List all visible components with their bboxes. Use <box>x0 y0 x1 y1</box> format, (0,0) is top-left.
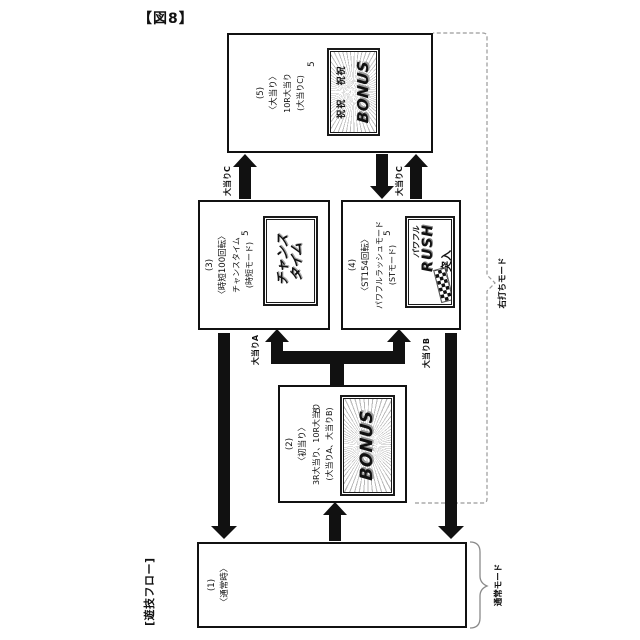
box-detail: (大当りC) <box>294 35 307 151</box>
rush-display: パワフル RUSH 突入 <box>408 219 452 305</box>
bonus-text: BONUS <box>357 398 377 493</box>
box-powerful-rush: (4) 〈ST154回転〉 パワフルラッシュモード (STモード) パワフル R… <box>341 200 461 330</box>
box-number: (4) <box>347 202 360 328</box>
box-normal-state: (1) 〈通常時〉 <box>197 542 467 628</box>
arrow-chancetime-to-normal-icon <box>211 333 237 539</box>
ref-5-label: 5 <box>241 230 251 236</box>
arrow-jackpot-to-rush-icon <box>370 154 394 199</box>
box-title: 〈大当り〉 <box>268 35 281 151</box>
label-jackpot-a: 大当りA <box>250 324 261 376</box>
box-detail: (時短モード) <box>243 202 256 328</box>
box-detail: 10R大当り <box>281 35 294 151</box>
chance-line1: チャンス <box>277 233 291 287</box>
screen-first-hit-bonus: BONUS <box>340 395 395 496</box>
box-first-hit: (2) 〈初当り〉 3R大当り、10R大当り (大当りA、大当りB) BONUS <box>278 385 407 503</box>
ref-5-label: 5 <box>307 61 317 67</box>
box-detail: (STモード) <box>386 202 399 328</box>
chance-line2: タイム <box>291 242 305 283</box>
ref-5-label: 5 <box>383 230 393 236</box>
label-jackpot-c-rush: 大当りC <box>394 155 405 207</box>
arrow-rush-to-normal-icon <box>438 333 464 539</box>
fork-bar <box>271 351 405 364</box>
box-chance-time: (3) 〈時短100回転〉 チャンスタイム (時短モード) チャンス タイム <box>198 200 330 330</box>
rotated-diagram: [遊技フロー] (1) 〈通常時〉 <box>0 0 640 640</box>
box-title: 〈ST154回転〉 <box>360 202 373 328</box>
box-title: 〈初当り〉 <box>297 387 310 501</box>
box-number: (3) <box>204 202 217 328</box>
label-jackpot-c-chance: 大当りC <box>222 155 233 207</box>
celebration-kanji: 祝祝 <box>334 99 347 119</box>
chance-time-display: チャンス タイム <box>266 219 315 303</box>
arrow-firsthit-to-rush-icon <box>387 329 411 352</box>
fork-stem <box>330 362 344 385</box>
celebration-kanji: 祝祝 <box>334 65 347 85</box>
right-strike-mode-label: 右打ちモード <box>496 247 508 319</box>
box-number: (2) <box>284 387 297 501</box>
box-detail: 3R大当り、10R大当り <box>310 387 323 501</box>
box-detail: パワフルラッシュモード <box>373 202 386 328</box>
box-number: (1) <box>206 544 219 626</box>
box-detail: チャンスタイム <box>230 202 243 328</box>
bonus-text: BONUS <box>354 51 372 133</box>
bonus-starburst: 祝祝 祝祝 BONUS <box>330 51 377 133</box>
label-jackpot-b: 大当りB <box>421 327 432 379</box>
normal-mode-brace <box>470 542 487 628</box>
ref-5-label: 5 <box>313 407 323 413</box>
arrow-normal-to-firsthit-icon <box>323 502 347 541</box>
bonus-starburst: BONUS <box>343 398 392 493</box>
checkered-road-icon <box>433 267 452 303</box>
rush-main-text: RUSH <box>420 224 436 272</box>
screen-chance-time: チャンス タイム <box>263 216 318 306</box>
arrow-rush-to-jackpot-icon <box>404 154 428 199</box>
arrow-firsthit-to-chancetime-icon <box>265 329 289 352</box>
arrow-chancetime-to-jackpot-icon <box>233 154 257 199</box>
box-title: 〈通常時〉 <box>219 544 232 626</box>
box-detail: (大当りA、大当りB) <box>323 387 336 501</box>
box-jackpot: (5) 〈大当り〉 10R大当り (大当りC) 祝祝 祝祝 BONUS <box>227 33 433 153</box>
box-number: (5) <box>255 35 268 151</box>
patent-figure-8: 【図8】 [遊技フロー] (1) <box>0 0 640 640</box>
box-title: 〈時短100回転〉 <box>217 202 230 328</box>
normal-mode-label: 通常モード <box>492 549 504 621</box>
screen-powerful-rush: パワフル RUSH 突入 <box>405 216 455 308</box>
screen-jackpot-bonus: 祝祝 祝祝 BONUS <box>327 48 380 136</box>
